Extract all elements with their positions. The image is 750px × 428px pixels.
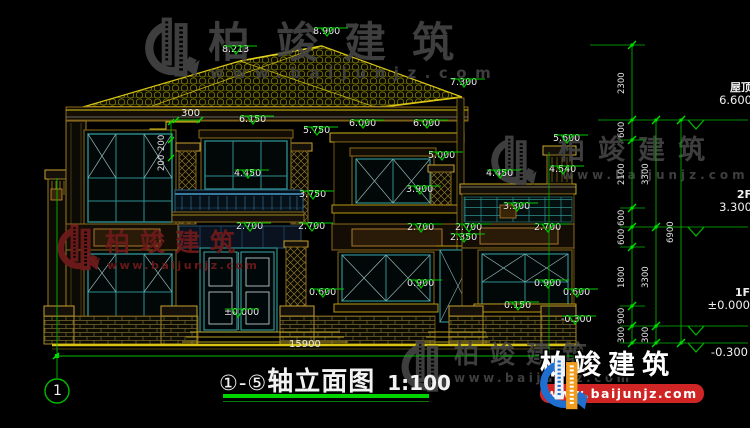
title-scale: 1:100	[387, 371, 451, 395]
spot-elevation: 3.900	[406, 185, 433, 195]
elevation-triangle-icon	[224, 308, 260, 319]
elevation-triangle-icon	[450, 78, 486, 89]
spot-elevation: 2.700	[298, 222, 325, 232]
elevation-triangle-icon	[234, 169, 270, 180]
spot-elevation: 0.900	[534, 279, 561, 289]
spot-elevation: 5.750	[303, 126, 330, 136]
elevation-triangle-icon	[407, 279, 443, 290]
spot-elevation: 3.300	[503, 202, 530, 212]
elevation-triangle-icon	[504, 301, 540, 312]
cad-elevation-screenshot: 1 柏竣建筑www.baijunjz.com柏竣建筑www.baijunjz.c…	[0, 0, 750, 428]
spot-elevation: 5.600	[553, 134, 580, 144]
spot-elevation: 2.700	[534, 223, 561, 233]
spot-elevation: 8.900	[313, 27, 340, 37]
elevation-triangle-icon	[563, 288, 599, 299]
axis-bubble-number: 1	[53, 383, 62, 399]
elevation-triangle-icon	[236, 222, 272, 233]
elevation-triangle-icon	[553, 134, 589, 145]
chain-dim-value: 6900	[667, 209, 676, 255]
elevation-triangle-icon	[534, 223, 570, 234]
chain-dim-value: 2100	[618, 151, 627, 197]
elevation-triangle-icon	[549, 165, 585, 176]
title-text: 轴立面图	[267, 361, 375, 398]
elevation-triangle-icon	[450, 233, 486, 244]
level-label: 2F3.300	[694, 189, 750, 214]
elevation-triangle-icon	[406, 185, 442, 196]
spot-elevation: -0.300	[561, 315, 592, 325]
axis-start-bubble: ①	[219, 371, 239, 395]
elevation-triangle-icon	[309, 288, 345, 299]
title-underline-2	[223, 401, 429, 402]
brand-logo: 柏竣建筑 www.baijunjz.com	[536, 351, 704, 403]
elevation-triangle-icon	[349, 119, 385, 130]
spot-elevation: 6.000	[349, 119, 376, 129]
spot-elevation: 3.750	[299, 190, 326, 200]
level-label: 屋顶6.600	[694, 82, 750, 107]
linear-dim-value: 15900	[289, 340, 321, 350]
elevation-triangle-icon	[239, 115, 275, 126]
spot-elevation: 0.900	[407, 279, 434, 289]
brand-logo-icon	[536, 351, 588, 417]
elevation-triangle-icon	[313, 27, 349, 38]
spot-elevation: 0.150	[504, 301, 531, 311]
axis-end-bubble: ⑤	[247, 371, 267, 395]
spot-elevation: 6.000	[413, 119, 440, 129]
level-label: 1F±0.000	[692, 287, 750, 312]
spot-elevation: 6.150	[239, 115, 266, 125]
elevation-triangle-icon	[486, 169, 522, 180]
elevation-triangle-icon	[561, 315, 597, 326]
spot-elevation: 4.450	[486, 169, 513, 179]
elevation-triangle-icon	[222, 45, 258, 56]
spot-elevation: 2.350	[450, 233, 477, 243]
drawing-title: ① - ⑤ 轴立面图 1:100	[219, 361, 451, 398]
elevation-triangle-icon	[303, 126, 339, 137]
spot-elevation: 8.213	[222, 45, 249, 55]
elevation-triangle-icon	[299, 190, 335, 201]
chain-dim-value: 2300	[618, 60, 627, 106]
elevation-triangle-icon	[503, 202, 539, 213]
spot-elevation: 4.540	[549, 165, 576, 175]
elevation-triangle-icon	[407, 223, 443, 234]
spot-elevation: ±0.000	[224, 308, 259, 318]
elevation-triangle-icon	[413, 119, 449, 130]
linear-dim-value: 200	[158, 140, 167, 186]
chain-dim-value: 600	[618, 107, 627, 153]
chain-dim-value: 3300	[642, 151, 651, 197]
spot-elevation: 4.450	[234, 169, 261, 179]
elevation-triangle-icon	[298, 222, 334, 233]
elevation-triangle-icon	[428, 151, 464, 162]
linear-dim-value: 300	[181, 109, 200, 119]
spot-elevation: 7.300	[450, 78, 477, 88]
spot-elevation: 2.700	[236, 222, 263, 232]
chain-dim-value: 3300	[642, 254, 651, 300]
spot-elevation: 0.600	[309, 288, 336, 298]
spot-elevation: 0.600	[563, 288, 590, 298]
spot-elevation: 2.700	[407, 223, 434, 233]
axis-dash: -	[239, 371, 248, 395]
spot-elevation: 5.000	[428, 151, 455, 161]
